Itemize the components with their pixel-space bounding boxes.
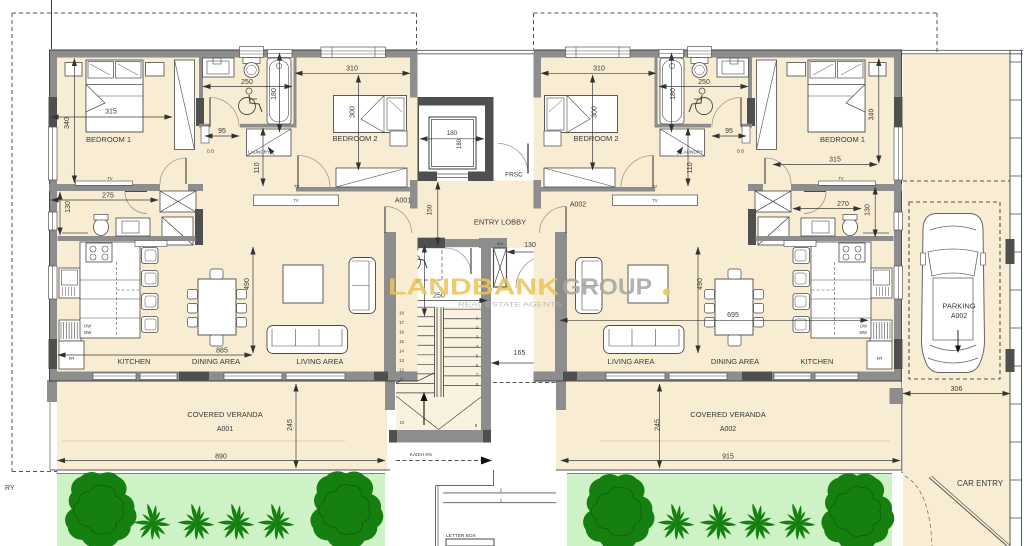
svg-text:180: 180 [457,138,463,149]
svg-text:16: 16 [399,330,404,335]
svg-text:COVERED VERANDA: COVERED VERANDA [690,410,765,419]
svg-text:A001: A001 [395,198,411,205]
svg-text:300: 300 [350,106,357,118]
svg-text:310: 310 [593,66,605,73]
svg-text:18: 18 [399,311,404,316]
svg-text:245: 245 [655,419,662,431]
svg-text:LETTER BOX: LETTER BOX [446,533,477,539]
svg-text:12: 12 [399,368,404,373]
svg-text:MW: MW [84,330,91,335]
svg-text:245: 245 [287,419,294,431]
svg-text:300: 300 [592,106,599,118]
svg-text:FR: FR [877,356,883,361]
svg-text:BEDROOM 1: BEDROOM 1 [86,135,131,144]
svg-text:315: 315 [105,109,117,116]
svg-text:110: 110 [254,162,261,173]
svg-text:885: 885 [216,348,228,355]
svg-text:TV: TV [838,176,844,181]
svg-text:250: 250 [241,79,253,86]
svg-text:COVERED VERANDA: COVERED VERANDA [187,410,262,419]
svg-text:890: 890 [215,454,227,461]
svg-text:FR: FR [69,356,75,361]
svg-text:340: 340 [869,109,876,121]
svg-text:14: 14 [399,349,404,354]
svg-text:TV: TV [294,184,300,189]
svg-text:165: 165 [514,350,526,357]
svg-text:270: 270 [837,201,849,208]
svg-text:95: 95 [218,128,226,135]
svg-text:ΚΛΙΣΗ 6%: ΚΛΙΣΗ 6% [410,452,433,458]
svg-text:LAUNDRY: LAUNDRY [248,150,270,155]
svg-text:TV: TV [652,184,658,189]
svg-text:DINING AREA: DINING AREA [711,357,759,366]
svg-text:306: 306 [951,386,963,393]
svg-text:OW: OW [84,324,91,329]
svg-text:OW: OW [860,324,867,329]
svg-text:A002: A002 [951,313,967,320]
svg-text:17: 17 [399,320,404,325]
svg-text:LANDBANK: LANDBANK [388,274,559,300]
svg-text:MW: MW [860,330,867,335]
svg-text:95: 95 [725,128,733,135]
svg-text:BEDROOM 2: BEDROOM 2 [332,134,377,143]
svg-text:A002: A002 [720,426,736,433]
svg-text:13: 13 [399,358,404,363]
svg-text:15: 15 [399,339,404,344]
svg-text:130: 130 [65,201,72,213]
svg-text:340: 340 [64,117,71,129]
svg-text:250: 250 [698,79,710,86]
svg-text:180: 180 [670,88,677,100]
svg-text:GROUP: GROUP [562,274,652,300]
svg-text:130: 130 [524,242,536,249]
svg-text:310: 310 [346,66,358,73]
svg-text:B.K: B.K [497,242,504,246]
svg-text:10: 10 [400,420,405,425]
svg-text:KITCHEN: KITCHEN [118,357,151,366]
svg-text:A001: A001 [217,426,233,433]
svg-text:RY: RY [5,485,15,492]
svg-text:915: 915 [722,454,734,461]
svg-text:LIVING AREA: LIVING AREA [608,357,655,366]
svg-text:DINING AREA: DINING AREA [192,357,240,366]
svg-text:130: 130 [865,204,872,216]
svg-text:LIVING AREA: LIVING AREA [297,357,344,366]
svg-text:275: 275 [102,193,114,200]
svg-text:A002: A002 [570,202,586,209]
svg-text:KITCHEN: KITCHEN [801,357,834,366]
svg-text:LAUNDRY: LAUNDRY [681,150,703,155]
svg-text:REAL ESTATE AGENTS: REAL ESTATE AGENTS [458,303,562,309]
svg-text:11: 11 [399,377,404,382]
svg-text:ENTRY LOBBY: ENTRY LOBBY [474,218,526,227]
svg-text:490: 490 [697,278,704,290]
svg-text:110: 110 [687,162,694,173]
svg-text:PARKING: PARKING [942,302,975,311]
svg-text:490: 490 [244,278,251,290]
svg-text:FRSC: FRSC [505,172,523,179]
svg-text:CAR ENTRY: CAR ENTRY [957,479,1004,488]
svg-text:TV: TV [293,198,299,203]
svg-text:BEDROOM 1: BEDROOM 1 [820,135,865,144]
svg-text:695: 695 [727,312,739,319]
svg-text:315: 315 [829,157,841,164]
svg-text:180: 180 [271,88,278,100]
svg-text:150: 150 [427,204,434,215]
svg-text:TV: TV [652,198,658,203]
svg-text:D.B: D.B [207,149,214,154]
svg-text:BEDROOM 2: BEDROOM 2 [573,134,618,143]
svg-text:TV: TV [107,176,113,181]
svg-text:D.B: D.B [737,149,744,154]
svg-text:180: 180 [447,130,458,137]
